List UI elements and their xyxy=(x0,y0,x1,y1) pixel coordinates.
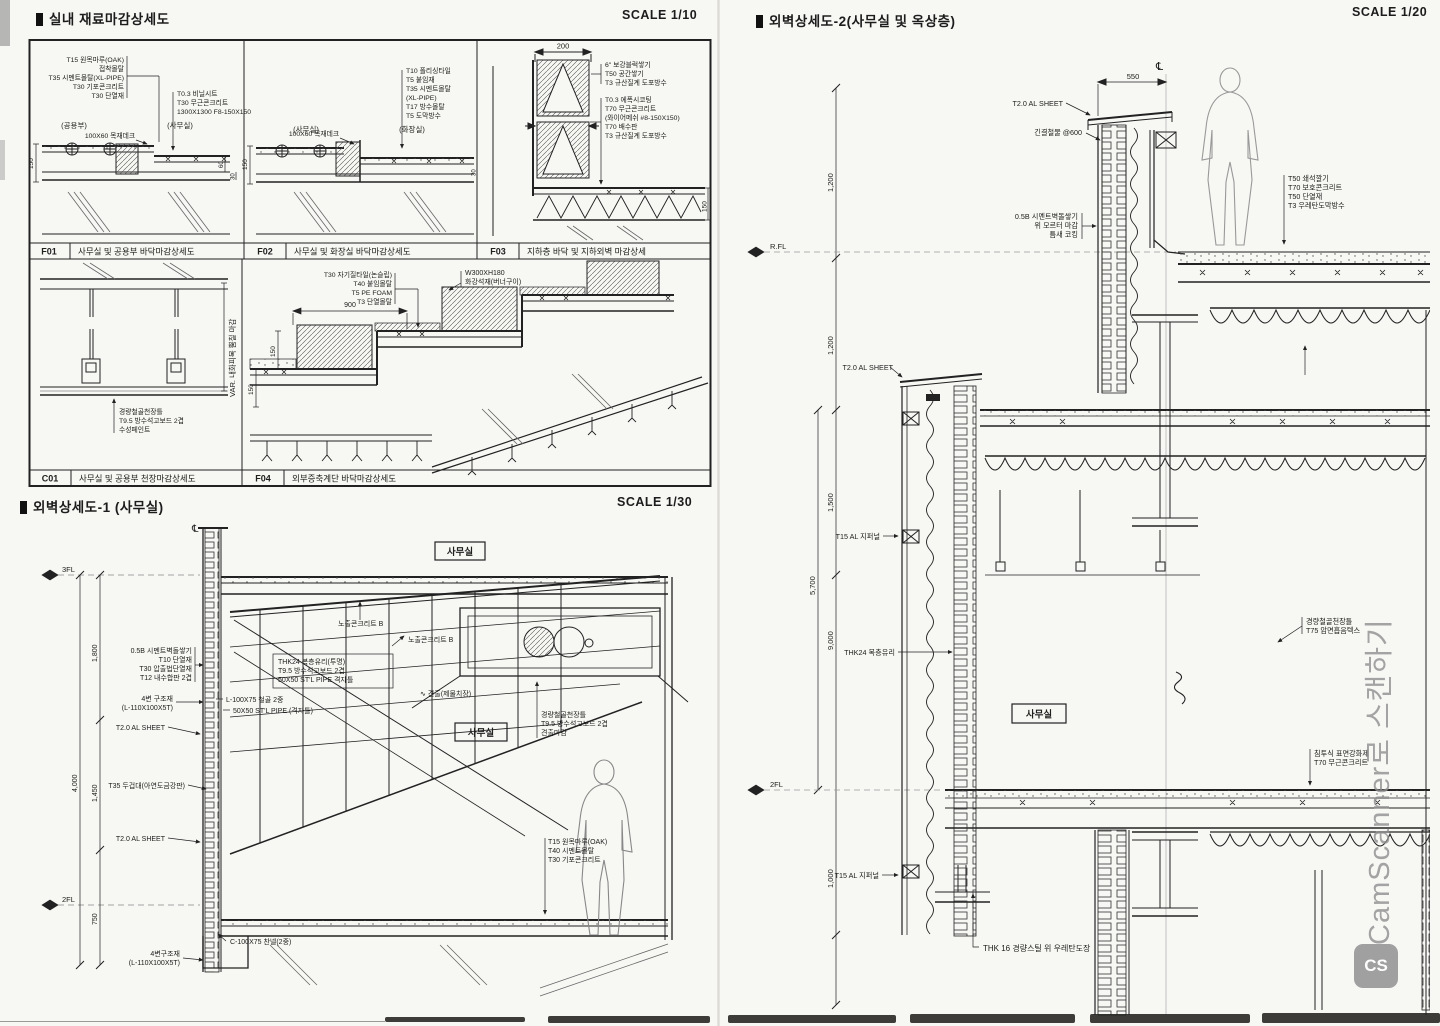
label: T9.5 방수석고보드 2겹 xyxy=(278,666,345,675)
f03-label: 6" 보강블럭쌓기 xyxy=(605,60,651,69)
f04-label: T3 단열몰탈 xyxy=(357,297,392,306)
f01-label: T35 시멘트몰탈(XL-PIPE) xyxy=(49,73,124,82)
label: T2.0 AL SHEET xyxy=(1013,99,1064,108)
dim: 9,000 xyxy=(826,631,835,650)
f01-label: T30 단열재 xyxy=(92,91,124,100)
detail-caption: 지하층 바닥 및 지하외벽 마감상세 xyxy=(527,247,646,257)
label: T10 단열재 xyxy=(159,655,192,664)
detail-code: F02 xyxy=(257,247,273,257)
room-label: (화장실) xyxy=(399,124,425,134)
right-scale: SCALE 1/20 xyxy=(1352,5,1427,19)
dim: 200 xyxy=(557,42,570,51)
dim: 150 xyxy=(248,384,255,395)
camscanner-logo: CS xyxy=(1354,944,1398,988)
wall-section-lines xyxy=(198,528,688,996)
room-label: 사무실 xyxy=(447,546,473,558)
title-tab-icon xyxy=(20,501,27,514)
label: 틈새 코킹 xyxy=(1050,230,1078,239)
scan-edge-mark xyxy=(1090,1014,1250,1023)
label: T40 시멘트몰탈 xyxy=(548,846,595,855)
person-figure xyxy=(1202,68,1258,245)
left-bottom-title-text: 외벽상세도-1 (사무실) xyxy=(33,500,164,515)
scan-edge-line xyxy=(0,1021,385,1022)
label: 50X50 ST'L PIPE (격자틀) xyxy=(233,706,313,715)
f04-label: T40 붙임몰탈 xyxy=(353,280,392,288)
room-label: (사무실) xyxy=(293,124,319,134)
c01-label: 경량철골천장틀 xyxy=(119,407,163,416)
left-bottom-title: 외벽상세도-1 (사무실) xyxy=(20,496,164,516)
f04-label: T30 자기질타일(논슬립) xyxy=(324,270,392,279)
f02-label: T17 방수몰탈 xyxy=(406,102,445,111)
page-fold-line xyxy=(717,0,720,1026)
label: T75 암면흡음텍스 xyxy=(1306,626,1360,635)
label: 견출마감 xyxy=(541,728,567,737)
wall-detail-1-drawing: ℄ 3FL 2FL 1,800 4,000 1,450 750 xyxy=(20,520,720,1010)
f02-label: T35 시멘트몰탈 xyxy=(406,84,451,93)
detail-f02-drawing: T10 폴리싱타일 T5 붙임재 T35 시멘트몰탈 (XL-PIPE) T17… xyxy=(242,66,478,234)
label: T30 압출법단열재 xyxy=(139,664,192,673)
roof-slab xyxy=(1178,252,1430,282)
detail-code: F01 xyxy=(41,247,57,257)
dim: 1,000 xyxy=(826,869,835,888)
label: 0.5B 시멘트벽돌쌓기 xyxy=(131,646,192,655)
f02-label: T5 붙임재 xyxy=(406,76,435,84)
label: T15 AL 지퍼널 xyxy=(836,532,880,541)
scan-edge-mark xyxy=(548,1016,710,1023)
f01-label: T30 무근콘크리트 xyxy=(177,98,228,107)
right-title: 외벽상세도-2(사무실 및 옥상층) xyxy=(756,10,956,30)
label: L-100X75 철골 2중 xyxy=(226,695,284,704)
dim: 550 xyxy=(1127,72,1140,81)
label: 위 모르터 마감 xyxy=(1034,221,1078,230)
dim: 1,450 xyxy=(92,784,99,802)
centerline-mark: ℄ xyxy=(1155,61,1163,73)
label: THK24 복층유리 xyxy=(844,648,895,657)
scan-edge-mark xyxy=(1262,1013,1440,1023)
dim: 1,200 xyxy=(826,336,835,355)
dim: 60 xyxy=(219,161,225,168)
right-title-text: 외벽상세도-2(사무실 및 옥상층) xyxy=(769,14,956,29)
label: 0.5B 시멘트벽돌쌓기 xyxy=(1015,212,1078,221)
f04-stone-label: 화강석재(버너구이) xyxy=(465,277,521,286)
detail-f03-drawing: 200 6" 보강블럭쌓기 T50 공간쌓기 T3 규산질계 도포방수 T0.3… xyxy=(493,42,711,241)
label: 노출콘크리트 B xyxy=(408,635,454,644)
scan-edge-mark xyxy=(728,1015,896,1023)
room-label: (사무실) xyxy=(167,120,193,130)
c01-label: 수성페인트 xyxy=(119,425,150,434)
dim: 150 xyxy=(28,158,35,169)
label: (L-110X100X5T) xyxy=(122,705,173,712)
scan-smudge xyxy=(0,0,10,46)
dim: 30 xyxy=(231,173,237,180)
title-tab-icon xyxy=(36,13,43,26)
scanned-architectural-sheet: 실내 재료마감상세도 SCALE 1/10 외벽상세도-2(사무실 및 옥상층)… xyxy=(0,0,1440,1026)
f03-label: T70 무근콘크리트 xyxy=(605,104,656,113)
detail-caption: 사무실 및 화장실 바닥마감상세도 xyxy=(294,247,411,257)
label: T2.0 AL SHEET xyxy=(843,363,894,372)
dim: 5,700 xyxy=(808,576,817,595)
label: (L-110X100X5T) xyxy=(129,960,180,967)
detail-caption: 사무실 및 공용부 천장마감상세도 xyxy=(79,474,196,484)
f02-label: T10 폴리싱타일 xyxy=(406,66,451,75)
f01-label: T30 기포콘크리트 xyxy=(73,82,124,91)
dim: 4,000 xyxy=(72,774,79,792)
detail-code: F03 xyxy=(490,247,506,257)
f01-center-label: 100X60 목재데크 xyxy=(85,132,135,140)
label: 노출콘크리트 B xyxy=(338,619,384,628)
label: T50 쇄석깔기 xyxy=(1288,174,1329,183)
room-label: 사무실 xyxy=(1026,709,1052,721)
label: 4변 구조재 xyxy=(141,695,173,703)
label: C-100X75 찬넬(2중) xyxy=(230,937,291,946)
label: T35 두겁대(아연도금강판) xyxy=(108,781,185,790)
dim: 150 xyxy=(702,201,709,212)
detail-code: C01 xyxy=(42,474,59,484)
f03-label: T3 규산질계 도포방수 xyxy=(605,78,667,87)
label: 긴결철물 @600 xyxy=(1034,128,1082,137)
dim: 1,800 xyxy=(92,644,99,662)
dimension-chain: 3FL 2FL 1,800 4,000 1,450 750 xyxy=(42,565,200,969)
detail-c01-drawing: 경량철골천장틀 T9.5 방수석고보드 2겹 수성페인트 VAR. 내화피복 뿜… xyxy=(40,263,237,434)
f03-label: T3 규산질계 도포방수 xyxy=(605,131,667,140)
f03-label: T50 공간쌓기 xyxy=(605,69,644,78)
label: 50X50 ST'L PIPE 격자틀 xyxy=(278,675,354,684)
label: T2.0 AL SHEET xyxy=(116,836,166,843)
f02-label: T5 도막방수 xyxy=(406,111,441,120)
f03-label: (와이어메쉬 #8-150X150) xyxy=(605,113,680,122)
level-label: 2FL xyxy=(770,780,783,789)
detail-f04-drawing: T30 자기질타일(논슬립) T40 붙임몰탈 T5 PE FOAM T3 단열… xyxy=(248,261,708,475)
left-top-scale: SCALE 1/10 xyxy=(622,8,697,22)
label: T15 AL 지퍼널 xyxy=(835,871,879,880)
room-box: 사무실 xyxy=(1012,704,1066,723)
dim: 150 xyxy=(242,159,249,170)
label: THK24 복층유리(투명) xyxy=(278,657,345,666)
label: T3 우레탄도막방수 xyxy=(1288,201,1345,210)
detail-f01-drawing: T15 원목마루(OAK) 접착몰탈 T35 시멘트몰탈(XL-PIPE) T3… xyxy=(28,55,251,234)
camscanner-watermark-text: CamScanner로 스캔하기 xyxy=(1356,545,1400,945)
room-label: (공용부) xyxy=(61,121,87,130)
level-label: 2FL xyxy=(62,895,75,904)
label: T9.5 방수석고보드 2겹 xyxy=(541,719,608,728)
left-top-title-text: 실내 재료마감상세도 xyxy=(49,12,170,27)
c01-side-text: VAR. 내화피복 뿜칠 마감 xyxy=(227,319,237,397)
centerline-mark: ℄ xyxy=(191,524,199,535)
label: T15 원목마루(OAK) xyxy=(548,837,607,846)
f03-label: T0.3 에폭시코팅 xyxy=(605,95,652,104)
scan-smudge xyxy=(0,140,5,180)
c01-label: T9.5 방수석고보드 2겹 xyxy=(119,416,184,425)
wall-detail-2-drawing: ℄ R.FL 2FL 1,200 1,200 1,500 5,700 9,000… xyxy=(730,30,1430,1020)
room-label: 사무실 xyxy=(468,727,494,739)
label: THK 16 경량스틸 위 우레탄도장 xyxy=(983,943,1091,953)
f01-label: T0.3 비닐시트 xyxy=(177,89,218,98)
label: ∿ 견출(제물치장) xyxy=(420,689,471,698)
detail-caption: 사무실 및 공용부 바닥마감상세도 xyxy=(78,247,195,257)
label: T30 기포콘크리트 xyxy=(548,855,601,864)
left-top-title: 실내 재료마감상세도 xyxy=(36,8,170,28)
dim: 150 xyxy=(270,346,277,357)
dim: 30 xyxy=(472,169,478,176)
dim: 1,200 xyxy=(826,173,835,192)
detail-caption: 외부증축계단 바닥마감상세도 xyxy=(292,474,396,484)
dim: 1,500 xyxy=(826,493,835,512)
label: 4변구조재 xyxy=(150,950,180,958)
level-label: 3FL xyxy=(62,565,75,574)
label: T2.0 AL SHEET xyxy=(116,725,166,732)
detail-code: F04 xyxy=(255,474,271,484)
label: T12 내수합판 2겹 xyxy=(140,673,192,682)
f04-label: T5 PE FOAM xyxy=(352,290,393,297)
f02-label: (XL-PIPE) xyxy=(406,95,437,102)
label: T50 단열재 xyxy=(1288,192,1322,201)
left-bottom-scale: SCALE 1/30 xyxy=(617,495,692,509)
annotation-leaders xyxy=(168,602,545,960)
dim: 900 xyxy=(344,302,356,309)
f04-stone-label: W300XH180 xyxy=(465,270,505,277)
interior-finish-details-panel: F01 F02 F03 C01 F04 사무실 및 공용부 바닥마감상세도 사무… xyxy=(28,36,712,488)
level-label: R.FL xyxy=(770,242,786,251)
label: 경량철골천장틀 xyxy=(541,710,587,719)
scan-edge-mark xyxy=(385,1017,525,1022)
f01-label: T15 원목마루(OAK) xyxy=(67,55,125,64)
f01-label: 접착몰탈 xyxy=(99,65,124,73)
scan-edge-mark xyxy=(910,1014,1075,1023)
title-tab-icon xyxy=(756,15,763,28)
left-wall xyxy=(900,374,982,936)
label: 경량철골천장틀 xyxy=(1306,617,1353,626)
dim: 750 xyxy=(92,913,99,925)
f01-label: 1300X1300 F8-150X150 xyxy=(177,109,251,116)
f03-label: T70 배수판 xyxy=(605,122,637,131)
label: T70 보호콘크리트 xyxy=(1288,183,1342,192)
